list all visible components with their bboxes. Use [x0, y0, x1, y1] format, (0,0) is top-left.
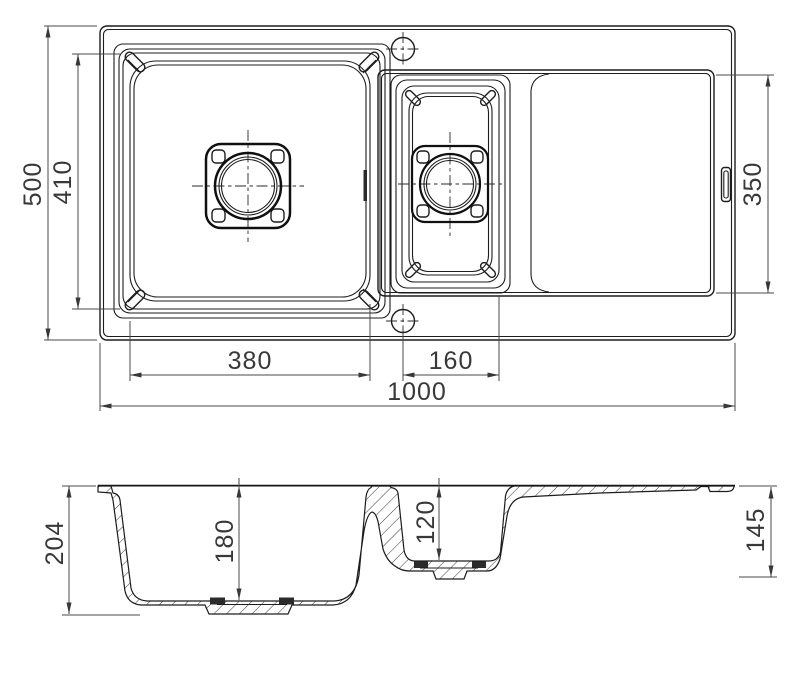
- dim-label-180: 180: [211, 519, 239, 564]
- main-bowl-drain: [192, 130, 304, 242]
- drain-circle-mid: [219, 157, 277, 215]
- dim-end-height-145: 145: [739, 486, 777, 577]
- drain-corner-hook: [471, 151, 483, 163]
- corner-facet: [357, 50, 380, 73]
- corner-facet: [404, 89, 422, 107]
- overflow-slot-outer: [722, 168, 731, 202]
- half-bowl: [391, 75, 510, 293]
- region-edge-inner-line: [382, 74, 711, 293]
- waste-gasket-left: [414, 562, 428, 569]
- dim-label-160: 160: [429, 347, 474, 375]
- corner-slope-line: [363, 289, 376, 302]
- dim-half-bowl-depth-120: 120: [412, 478, 440, 560]
- waste-gasket-right: [472, 562, 486, 569]
- dim-half-bowl-160: 160: [403, 296, 499, 381]
- corner-slope-line: [363, 60, 376, 73]
- half-bowl-drain: [398, 132, 502, 236]
- corner-slope-line: [128, 60, 141, 73]
- section-view: 204 180 120 145: [41, 478, 777, 615]
- dim-main-bowl-380: 380: [130, 304, 370, 381]
- faucet-hole-bottom: [386, 304, 420, 338]
- dim-label-500: 500: [19, 162, 47, 207]
- corner-facet: [479, 89, 497, 107]
- dim-main-bowl-depth-180: 180: [211, 478, 239, 600]
- overflow-slot-inner: [724, 171, 728, 198]
- sink-technical-drawing: 500 410 380 160 1000: [0, 0, 800, 677]
- dim-label-204: 204: [41, 521, 69, 566]
- drain-corner-hook: [417, 205, 429, 217]
- bowl-wall-overflow-slot: [364, 170, 368, 201]
- corner-facet: [404, 261, 422, 279]
- drain-corner-hook: [212, 150, 225, 163]
- waste-gasket-right: [279, 598, 294, 605]
- drain-corner-hook: [271, 209, 284, 222]
- dim-label-145: 145: [742, 508, 770, 553]
- main-bowl-bottom-fillet: [134, 65, 366, 297]
- overflow-slot: [722, 168, 731, 202]
- dim-label-410: 410: [49, 160, 77, 205]
- main-bowl-slope-top: [123, 53, 380, 309]
- drawing-canvas: 500 410 380 160 1000: [0, 0, 800, 677]
- drainer-surface-edge: [531, 74, 549, 292]
- half-bowl-drainer-region: [378, 70, 714, 296]
- dim-label-350: 350: [739, 162, 767, 207]
- drain-corner-hook: [471, 205, 483, 217]
- drain-corner-hook: [212, 209, 225, 222]
- main-bowl-rim-1: [114, 44, 390, 318]
- dim-bowl-depth-410: 410: [49, 54, 120, 309]
- dim-overall-width-1000: 1000: [100, 343, 735, 411]
- main-bowl-corner-facets: [123, 50, 380, 311]
- region-edge: [378, 70, 714, 296]
- dim-drainer-350: 350: [716, 75, 774, 293]
- main-bowl-rim-2: [119, 49, 385, 313]
- corner-facet: [479, 261, 497, 279]
- dim-label-120: 120: [412, 500, 440, 545]
- main-bowl: [114, 44, 390, 318]
- plan-view: 500 410 380 160 1000: [19, 26, 774, 411]
- waste-gasket-left: [210, 598, 225, 605]
- drain-corner-hook: [417, 151, 429, 163]
- dim-label-1000: 1000: [387, 378, 447, 406]
- drain-corner-hook: [271, 150, 284, 163]
- corner-facet: [123, 288, 146, 311]
- corner-slope-line: [128, 289, 141, 302]
- main-bowl-bottom: [130, 61, 370, 301]
- dim-label-380: 380: [228, 347, 273, 375]
- faucet-hole-top: [386, 32, 420, 66]
- corner-facet: [357, 288, 380, 311]
